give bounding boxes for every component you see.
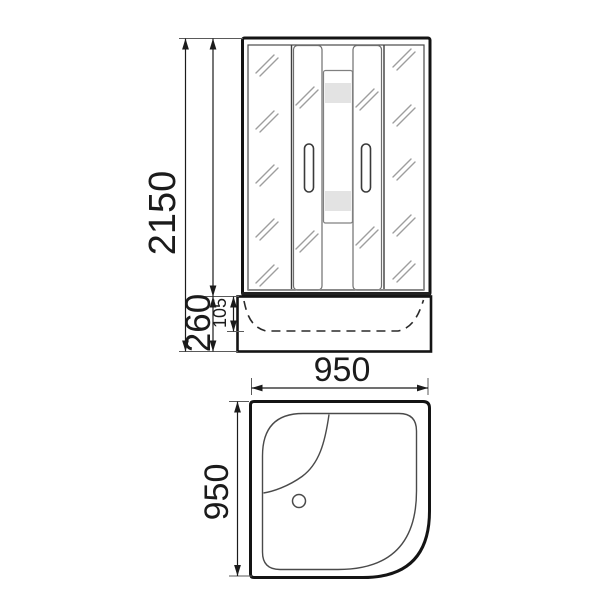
left-door-handle: [305, 144, 314, 192]
front-dimensions: 2150 260 105: [142, 39, 244, 353]
front-view: [238, 38, 432, 352]
frosted-band-top: [325, 83, 351, 103]
label-basin-depth: 105: [210, 298, 230, 328]
label-total-height: 2150: [142, 171, 184, 256]
drain-hole: [293, 495, 306, 508]
label-plan-width: 950: [314, 351, 371, 389]
frosted-band-bottom: [325, 191, 351, 211]
drawing-svg: 2150 260 105 950 950: [0, 0, 600, 600]
shower-technical-drawing: 2150 260 105 950 950: [0, 0, 600, 600]
top-view: [251, 402, 430, 578]
tray-front: [238, 297, 432, 352]
right-door-handle: [362, 144, 371, 192]
label-plan-depth: 950: [198, 464, 236, 521]
